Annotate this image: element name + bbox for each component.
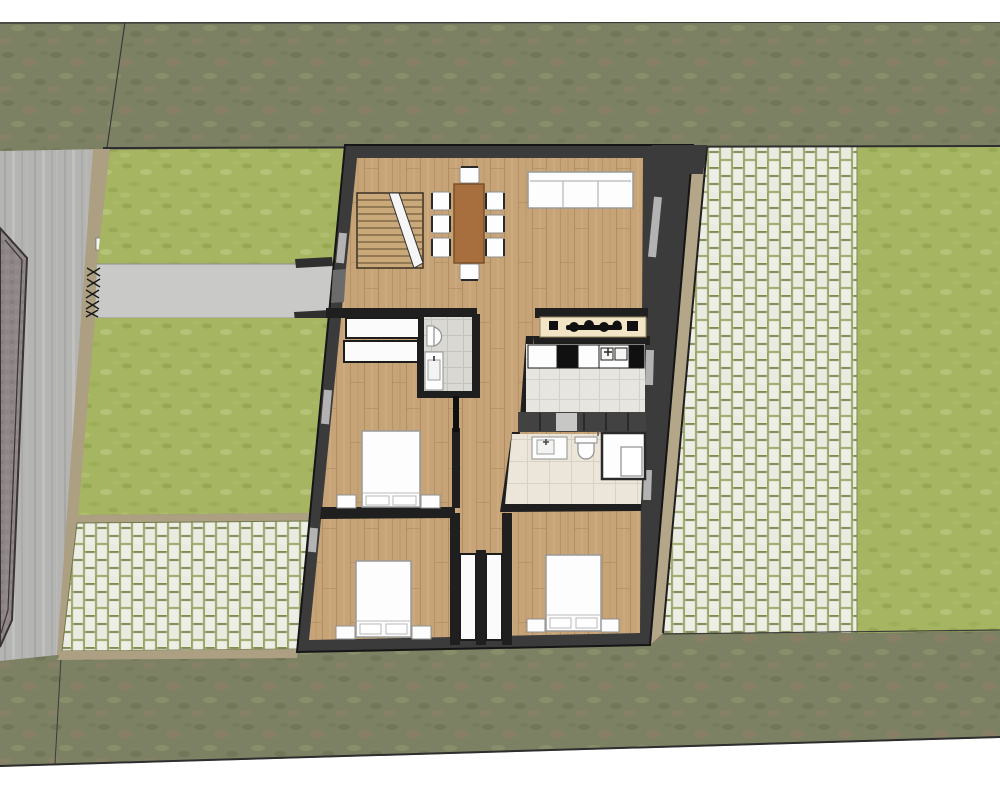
window-west-1 — [340, 233, 343, 263]
front-paver-court — [62, 521, 310, 651]
top-property-line — [0, 22, 1000, 23]
front-lawn-upper — [97, 147, 345, 264]
pillow — [386, 624, 407, 634]
wardrobe-2 — [344, 341, 418, 362]
dining-table — [454, 184, 484, 263]
wardrobe-1 — [346, 318, 419, 338]
shower-tray — [621, 447, 642, 476]
backyard-lawn — [857, 147, 1000, 633]
nightstand — [527, 619, 545, 632]
nightstand — [412, 626, 431, 639]
window-east-2 — [649, 350, 650, 385]
bathroom1-fixtures — [425, 326, 443, 390]
pillow — [366, 496, 389, 505]
washer — [556, 413, 577, 431]
entry-walkway — [95, 264, 334, 318]
door-leaf-bed1 — [453, 396, 459, 432]
wall-closet-west — [450, 513, 460, 645]
nightstand — [421, 495, 440, 508]
utility-cabinet-row — [518, 412, 646, 432]
toilet2-tank — [575, 437, 597, 443]
window-west-3 — [312, 528, 314, 552]
pillow — [393, 496, 416, 505]
pillow — [360, 624, 381, 634]
staircase — [357, 193, 423, 268]
nightstand — [337, 495, 356, 508]
exterior-wall-top-right-corner — [650, 145, 707, 174]
hall-closet-left — [460, 554, 476, 640]
floor-plan-svg — [0, 0, 1000, 790]
wall-hall-east — [452, 428, 460, 508]
washbasin-bowl — [428, 360, 440, 380]
front-door — [331, 269, 346, 303]
wall-bath1-east — [471, 314, 480, 398]
hall-closet-right — [486, 554, 502, 640]
wall-living-south-left — [326, 308, 477, 318]
nightstand — [601, 619, 619, 632]
wall-bath1-south — [417, 390, 480, 398]
counter-appliance-right — [627, 321, 638, 331]
counter-appliance-left — [549, 321, 558, 330]
wall-bed1-south — [320, 507, 455, 519]
front-lawn-lower — [78, 318, 329, 515]
sofa — [528, 172, 633, 208]
pillow — [576, 618, 597, 628]
wall-closet-east — [502, 513, 512, 645]
nightstand — [336, 626, 355, 639]
toilet-tank — [427, 326, 434, 346]
kitchen-cabinet-row — [528, 345, 644, 368]
toilet2-bowl — [578, 443, 594, 459]
window-east-3 — [647, 470, 648, 500]
wall-closet-mid — [476, 550, 486, 645]
site-plan-stage — [0, 0, 1000, 790]
pillow — [550, 618, 571, 628]
window-west-2 — [325, 390, 328, 424]
top-white-margin — [0, 0, 1000, 22]
